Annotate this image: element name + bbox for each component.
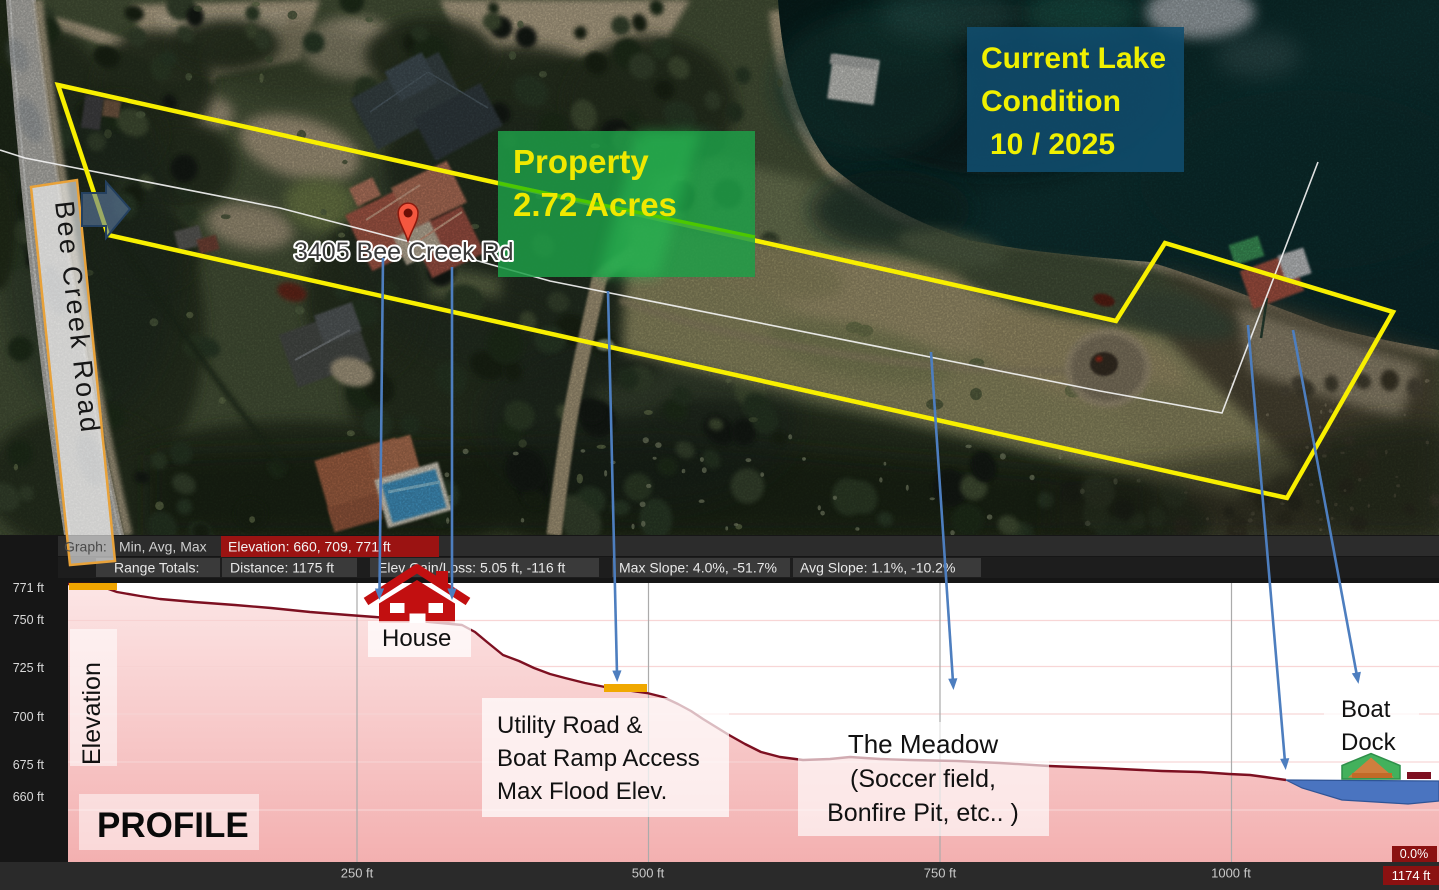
- svg-text:Property: Property: [513, 143, 649, 180]
- svg-text:The Meadow: The Meadow: [848, 729, 999, 759]
- svg-text:Elevation: 660, 709, 771 ft: Elevation: 660, 709, 771 ft: [228, 539, 391, 555]
- svg-text:Max Flood Elev.: Max Flood Elev.: [497, 778, 667, 805]
- svg-text:675 ft: 675 ft: [13, 758, 45, 772]
- svg-text:Utility Road &: Utility Road &: [497, 712, 642, 739]
- svg-text:500 ft: 500 ft: [632, 866, 665, 881]
- svg-text:1000 ft: 1000 ft: [1211, 866, 1251, 881]
- svg-text:Boat Ramp Access: Boat Ramp Access: [497, 745, 700, 772]
- svg-text:Current Lake: Current Lake: [981, 42, 1166, 75]
- svg-text:1174 ft: 1174 ft: [1392, 868, 1431, 883]
- svg-text:Dock: Dock: [1341, 729, 1397, 756]
- svg-text:Graph:: Graph:: [64, 539, 107, 555]
- svg-text:750 ft: 750 ft: [924, 866, 957, 881]
- svg-text:Max Slope: 4.0%, -51.7%: Max Slope: 4.0%, -51.7%: [619, 560, 777, 576]
- svg-text:PROFILE: PROFILE: [97, 806, 249, 845]
- svg-text:0.0%: 0.0%: [1400, 847, 1429, 861]
- svg-text:3405 Bee Creek Rd: 3405 Bee Creek Rd: [294, 238, 514, 266]
- svg-text:House: House: [382, 625, 451, 652]
- svg-text:(Soccer field,: (Soccer field,: [850, 765, 996, 793]
- svg-text:750 ft: 750 ft: [13, 613, 45, 627]
- svg-text:10 / 2025: 10 / 2025: [990, 128, 1115, 161]
- svg-text:Bonfire Pit, etc.. ): Bonfire Pit, etc.. ): [827, 799, 1019, 827]
- svg-text:250 ft: 250 ft: [341, 866, 374, 881]
- svg-text:2.72 Acres: 2.72 Acres: [513, 186, 677, 223]
- svg-text:660 ft: 660 ft: [13, 790, 45, 804]
- svg-text:Elevation: Elevation: [78, 662, 106, 765]
- svg-text:725 ft: 725 ft: [13, 661, 45, 675]
- svg-text:Avg Slope: 1.1%, -10.2%: Avg Slope: 1.1%, -10.2%: [800, 560, 955, 576]
- svg-text:Range Totals:: Range Totals:: [114, 560, 199, 576]
- svg-text:Boat: Boat: [1341, 696, 1391, 723]
- svg-text:771 ft: 771 ft: [13, 581, 45, 595]
- svg-text:700 ft: 700 ft: [13, 710, 45, 724]
- svg-text:Min, Avg, Max: Min, Avg, Max: [119, 539, 207, 555]
- svg-text:Condition: Condition: [981, 85, 1121, 118]
- svg-text:Distance: 1175 ft: Distance: 1175 ft: [230, 560, 334, 576]
